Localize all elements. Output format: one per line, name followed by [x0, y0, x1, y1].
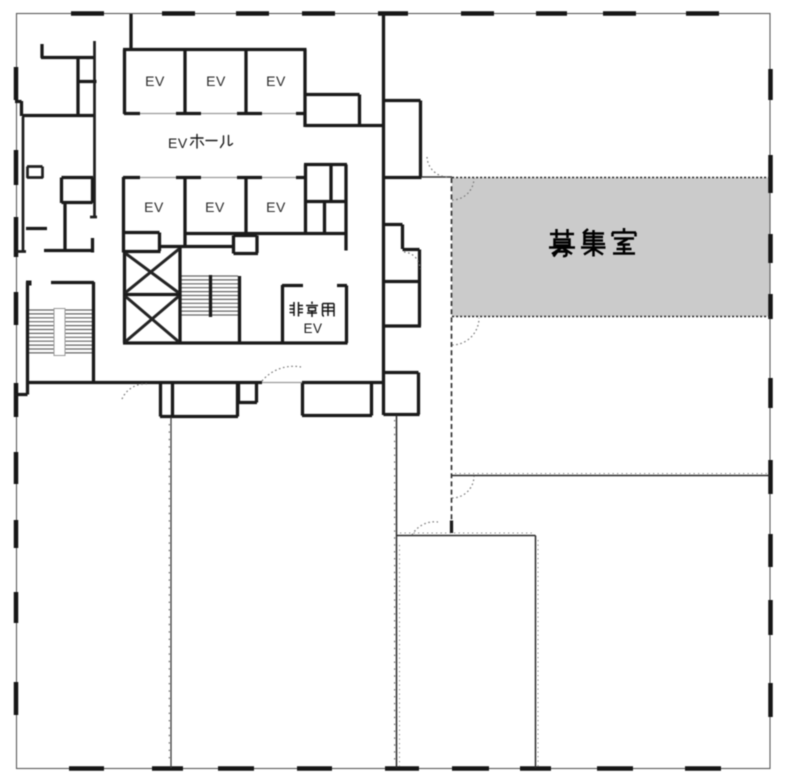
svg-text:EV: EV — [303, 321, 322, 336]
svg-text:EV: EV — [266, 73, 286, 89]
svg-text:EV: EV — [206, 73, 226, 89]
svg-text:EV: EV — [145, 73, 165, 89]
svg-text:EV: EV — [168, 135, 188, 151]
svg-text:EV: EV — [205, 199, 225, 215]
svg-text:EV: EV — [266, 199, 286, 215]
svg-text:EV: EV — [144, 199, 164, 215]
